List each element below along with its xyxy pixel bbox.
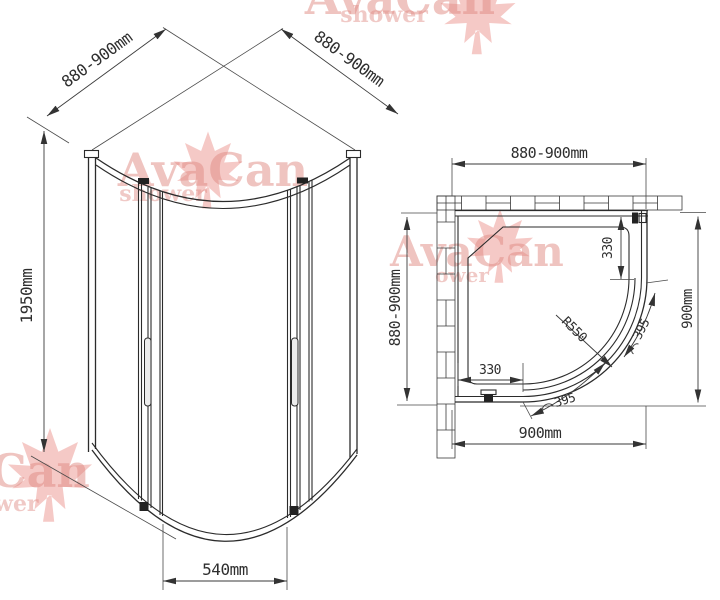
- dimension-height: 1950mm: [17, 131, 44, 452]
- left-door-hanger: [138, 178, 149, 184]
- watermark-subtitle-partial: ower: [435, 263, 489, 287]
- front-view: 880-900mm 880-900mm 1950mm 540mm: [17, 27, 398, 590]
- left-door-roller: [140, 502, 149, 511]
- extension-line-top-ground: [27, 117, 69, 143]
- dimension-door-arc-bottom: 395: [523, 363, 605, 419]
- left-post-cap: [85, 151, 99, 158]
- watermark-subtitle: shower: [119, 181, 207, 207]
- watermark-brand-partial: Can: [0, 444, 90, 498]
- dim-label: 330: [601, 237, 616, 259]
- dim-label: 880-900mm: [386, 269, 404, 346]
- dimension-plan-top-width: 880-900mm: [452, 144, 646, 209]
- dimension-door-radius: R550: [556, 314, 612, 367]
- dim-label: 900mm: [519, 424, 562, 442]
- dim-label: 880-900mm: [511, 144, 588, 162]
- technical-drawing-canvas: AvaCan shower AvaCan shower Can wer AvaC…: [0, 0, 720, 600]
- watermark-bottom-left: Can wer: [0, 428, 92, 522]
- dimension-plan-bottom-width: 900mm: [452, 406, 646, 449]
- left-door-handle: [145, 338, 152, 406]
- watermark-left: AvaCan shower: [117, 132, 308, 209]
- watermark-subtitle: shower: [340, 2, 428, 28]
- plan-door-arc-outer: [523, 278, 647, 402]
- right-post-cap: [347, 151, 361, 158]
- dimension-door-opening: 540mm: [163, 524, 287, 590]
- dim-label: 395: [630, 316, 653, 342]
- left-corner-post: [89, 158, 96, 452]
- bottom-rail-outer: [92, 450, 357, 541]
- right-door-stile-outer: [309, 181, 312, 502]
- right-door-handle: [292, 338, 299, 406]
- watermark-plan: AvaCan ower: [389, 209, 564, 287]
- left-door-stile-outer: [139, 183, 142, 501]
- right-fixed-panel-edge: [288, 190, 291, 519]
- bottom-rail-stopper: [484, 395, 493, 402]
- bottom-rail-bracket: [481, 390, 496, 395]
- dimension-top-left-width: 880-900mm: [47, 28, 166, 116]
- right-rail-bracket: [639, 214, 646, 223]
- right-rail-stopper: [632, 213, 638, 224]
- watermark-subtitle-partial: wer: [0, 491, 39, 517]
- wall-top: [437, 196, 682, 210]
- shower-enclosure-drawing: AvaCan shower AvaCan shower Can wer AvaC…: [0, 0, 720, 600]
- dim-label: 540mm: [202, 560, 248, 579]
- dimension-top-right-width: 880-900mm: [281, 27, 398, 114]
- dim-label: 395: [552, 389, 577, 410]
- right-corner-post: [350, 158, 357, 458]
- left-fixed-panel-edge: [160, 191, 163, 516]
- right-door-roller: [290, 506, 299, 515]
- arc-length-symbol: [630, 342, 639, 354]
- bottom-rail-inner: [92, 443, 357, 535]
- dim-label: R550: [558, 314, 589, 345]
- plan-view: 880-900mm 880-900mm 900mm 900mm 330 330: [386, 144, 706, 458]
- dim-label: 900mm: [680, 289, 696, 329]
- dim-label: 330: [479, 363, 501, 378]
- right-door-hanger: [297, 178, 308, 184]
- dim-label: 1950mm: [17, 269, 36, 324]
